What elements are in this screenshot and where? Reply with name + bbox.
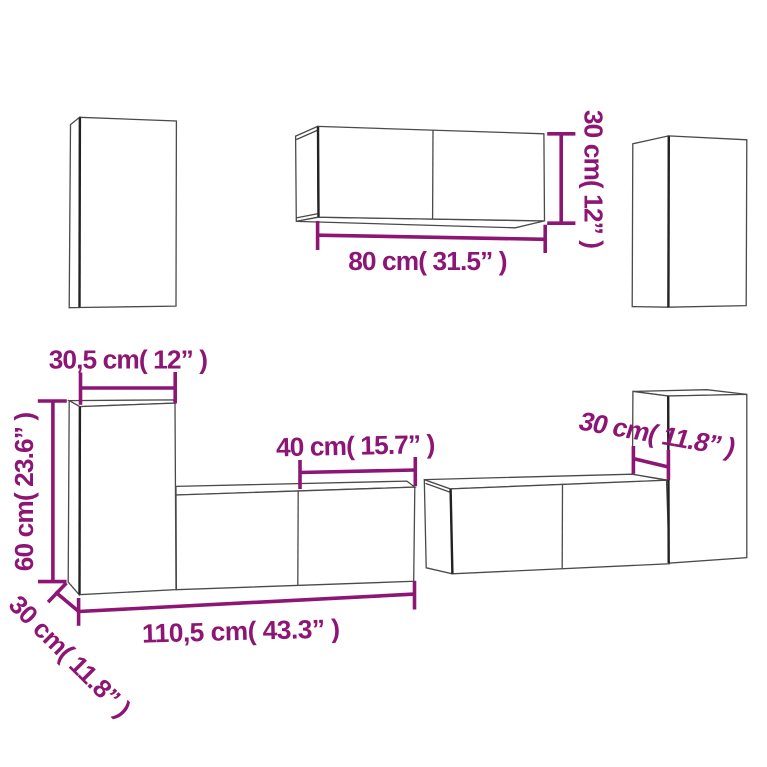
svg-text:40 cm( 15.7” ): 40 cm( 15.7” ) (276, 429, 435, 462)
svg-text:30,5 cm( 12” ): 30,5 cm( 12” ) (49, 345, 208, 375)
svg-text:60 cm( 23.6” ): 60 cm( 23.6” ) (9, 413, 39, 572)
svg-text:30 cm( 12” ): 30 cm( 12” ) (579, 110, 609, 248)
svg-text:110,5 cm( 43.3” ): 110,5 cm( 43.3” ) (142, 613, 340, 648)
svg-text:80 cm( 31.5” ): 80 cm( 31.5” ) (348, 246, 507, 276)
